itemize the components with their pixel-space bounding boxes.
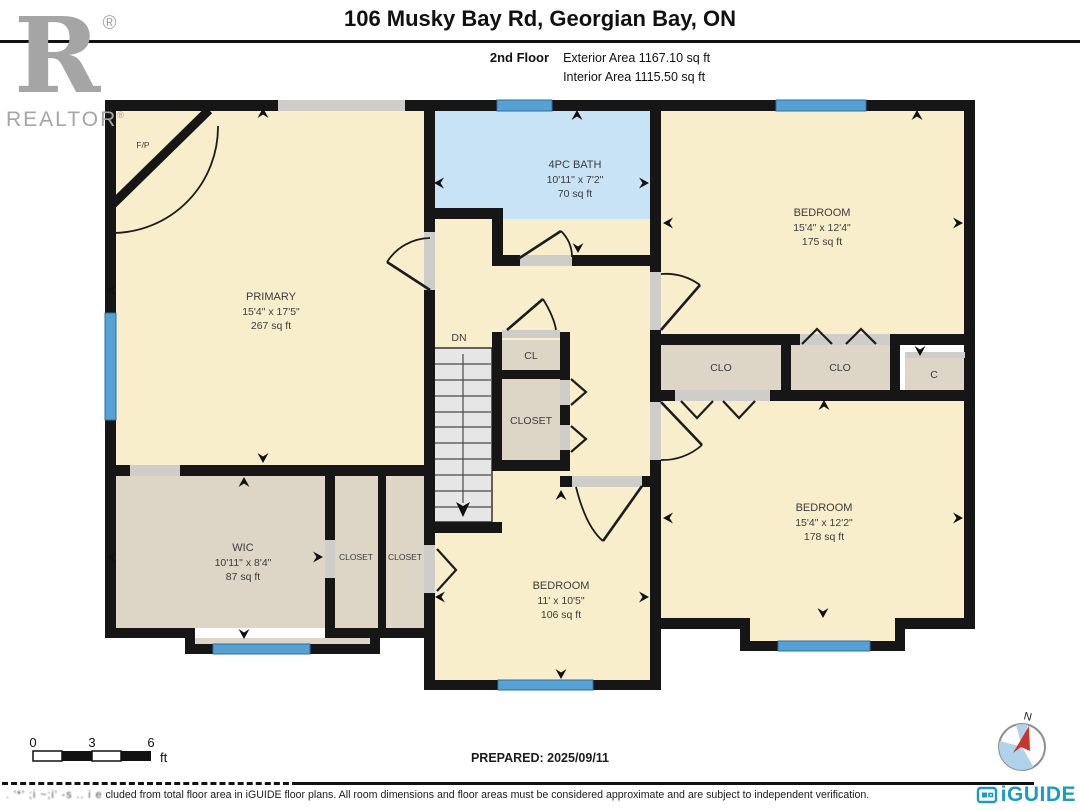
closet-label-clo-2: CLO (829, 362, 851, 374)
room-area-bedroom-tr: 175 sq ft (802, 236, 842, 248)
scale-tick-0: 0 (29, 735, 36, 750)
staircase (434, 348, 492, 522)
room-area-wic: 87 sq ft (226, 571, 261, 583)
floor-plan: PRIMARY 15'4" x 17'5" 267 sq ft 4PC BATH… (0, 0, 1080, 810)
room-area-bedroom-br: 178 sq ft (804, 531, 844, 543)
realtor-logo: R® REALTOR® (6, 0, 136, 132)
scale-tick-3: 3 (88, 735, 95, 750)
room-dims-bath: 10'11" x 7'2" (547, 174, 604, 186)
disclaimer-text: . '*' ;i ~;i' -s .. i ecluded from total… (6, 789, 869, 801)
footer-divider (298, 782, 1034, 785)
closet-label-c: C (930, 369, 938, 381)
compass-north-label: N (1022, 710, 1033, 724)
room-label-primary: PRIMARY (246, 291, 297, 303)
room-label-bedroom-bc: BEDROOM (533, 580, 590, 592)
closet-label-clo-1: CLO (710, 362, 732, 374)
footer-divider-dashed (2, 782, 298, 785)
iguide-logo-text: iGUIDE (1001, 783, 1076, 807)
closet-label-left-1: CLOSET (339, 552, 373, 562)
room-dims-bedroom-bc: 11' x 10'5" (537, 595, 585, 607)
iguide-logo: iGUIDE (976, 783, 1076, 807)
room-label-bedroom-br: BEDROOM (796, 502, 853, 514)
room-dims-bedroom-br: 15'4" x 12'2" (795, 517, 853, 529)
fireplace-label: F/P (136, 140, 150, 150)
room-area-primary: 267 sq ft (251, 320, 291, 332)
iguide-icon (976, 784, 998, 806)
room-area-bedroom-bc: 106 sq ft (541, 609, 581, 621)
disclaimer-garbled-prefix: . '*' ;i ~;i' -s .. i e (6, 789, 102, 801)
closet-label-cl: CL (524, 350, 538, 362)
closet-label-left-2: CLOSET (388, 552, 422, 562)
registered-mark-icon: ® (102, 14, 116, 35)
room-label-wic: WIC (232, 542, 253, 554)
room-label-bedroom-tr: BEDROOM (794, 207, 851, 219)
realtor-logo-r: R® (14, 0, 136, 112)
room-dims-bedroom-tr: 15'4" x 12'4" (793, 222, 851, 234)
room-dims-primary: 15'4" x 17'5" (242, 306, 300, 318)
scale-tick-6: 6 (147, 735, 154, 750)
room-dims-wic: 10'11" x 8'4" (215, 557, 272, 569)
stairs-dn-label: DN (451, 332, 466, 344)
room-label-bath: 4PC BATH (549, 159, 602, 171)
closet-label-center: CLOSET (510, 415, 553, 427)
room-area-bath: 70 sq ft (558, 188, 593, 200)
prepared-date: PREPARED: 2025/09/11 (0, 751, 1080, 765)
